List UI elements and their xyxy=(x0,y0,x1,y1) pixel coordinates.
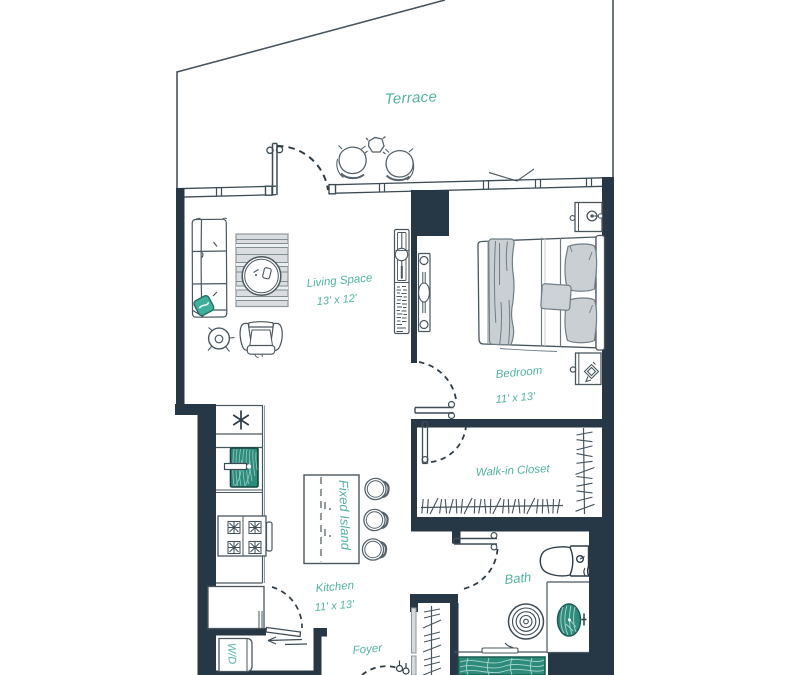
svg-text:Kitchen: Kitchen xyxy=(315,580,354,595)
svg-text:Walk-in Closet: Walk-in Closet xyxy=(476,463,551,479)
svg-text:Foyer: Foyer xyxy=(352,642,383,657)
svg-text:11' x 13': 11' x 13' xyxy=(495,391,536,406)
svg-text:Terrace: Terrace xyxy=(384,88,437,108)
svg-text:Living Space: Living Space xyxy=(306,272,373,290)
svg-text:W/D: W/D xyxy=(225,643,238,665)
svg-text:Fixed Island: Fixed Island xyxy=(336,480,353,551)
svg-text:11' x 13': 11' x 13' xyxy=(314,599,355,614)
svg-text:13' x 12': 13' x 12' xyxy=(316,292,358,308)
svg-text:Bath: Bath xyxy=(504,569,532,587)
svg-text:Bedroom: Bedroom xyxy=(495,365,543,381)
